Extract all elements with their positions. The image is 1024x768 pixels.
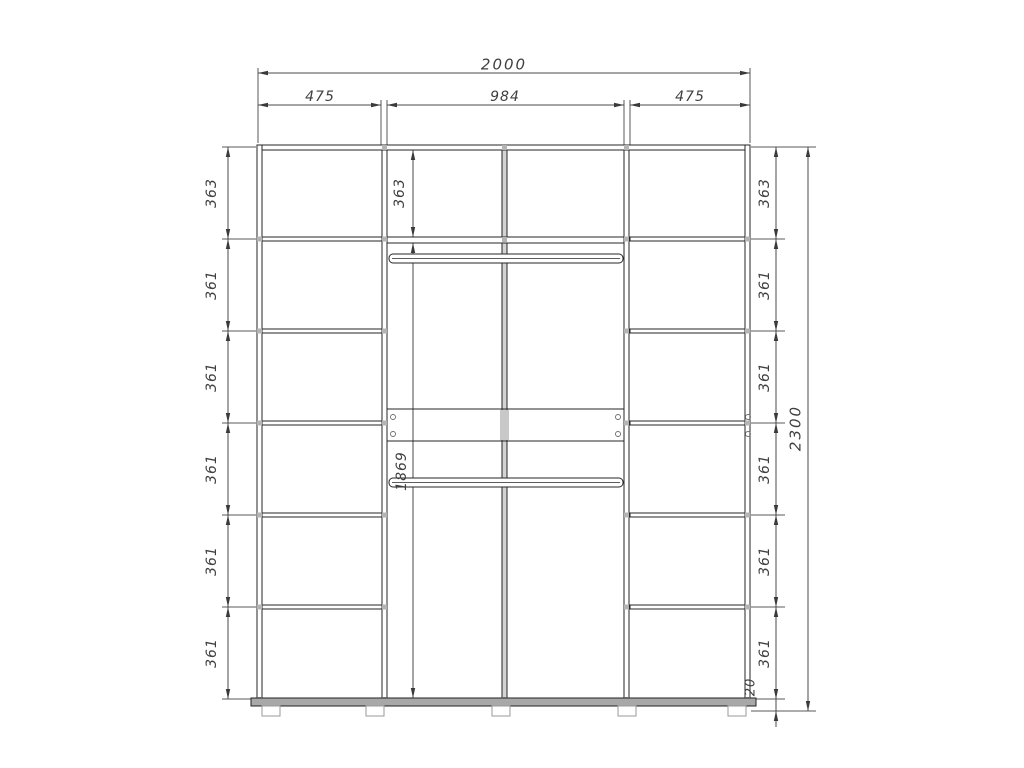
dim-left-row-3: 361: [205, 362, 219, 392]
dim-left-width: 475: [305, 90, 335, 104]
dim-center-top: 363: [393, 178, 407, 208]
dim-left-row-5: 361: [205, 546, 219, 576]
cam-bolt-icon: [616, 432, 621, 437]
dim-right-row-5: 361: [758, 546, 772, 576]
shelf: [630, 329, 745, 333]
shelf: [262, 237, 382, 241]
dim-plinth: 20: [745, 678, 758, 697]
foot: [366, 706, 384, 716]
shelf: [262, 329, 382, 333]
dim-left-row-2: 361: [205, 270, 219, 300]
dimension-arrows: [226, 71, 810, 721]
shelf: [630, 513, 745, 517]
foot: [492, 706, 510, 716]
shelf: [630, 237, 745, 241]
stiffener-center: [500, 410, 509, 440]
shelf: [262, 421, 382, 425]
foot: [618, 706, 636, 716]
cam-bolt-icon: [391, 432, 396, 437]
cam-bolt-icon: [391, 415, 396, 420]
shelf: [262, 513, 382, 517]
foot: [728, 706, 746, 716]
dim-total-height: 2300: [789, 405, 804, 451]
shelf: [262, 605, 382, 609]
dim-left-row-4: 361: [205, 454, 219, 484]
dim-left-row-6: 361: [205, 638, 219, 668]
extension-lines: [222, 68, 816, 711]
foot: [262, 706, 280, 716]
dim-center-width: 984: [490, 90, 520, 104]
adjustable-feet: [262, 706, 746, 716]
dim-total-width: 2000: [481, 58, 527, 73]
dim-right-row-3: 361: [758, 362, 772, 392]
dim-left-row-1: 363: [205, 178, 219, 208]
dimension-lines: [228, 73, 808, 727]
drawing-linework: [0, 0, 1024, 768]
cam-bolt-icon: [616, 415, 621, 420]
dim-right-row-2: 361: [758, 270, 772, 300]
technical-drawing-canvas: 2000 475 984 475 363 361 361 361 361 361…: [0, 0, 1024, 768]
stiffener-center-block: [500, 410, 509, 440]
shelf: [630, 421, 745, 425]
dim-right-row-4: 361: [758, 454, 772, 484]
shelf: [630, 605, 745, 609]
dim-right-width: 475: [675, 90, 705, 104]
dim-right-row-1: 363: [758, 178, 772, 208]
dim-center-opening: 1869: [395, 451, 409, 491]
plinth-base: [251, 698, 756, 706]
dim-right-row-6: 361: [758, 638, 772, 668]
